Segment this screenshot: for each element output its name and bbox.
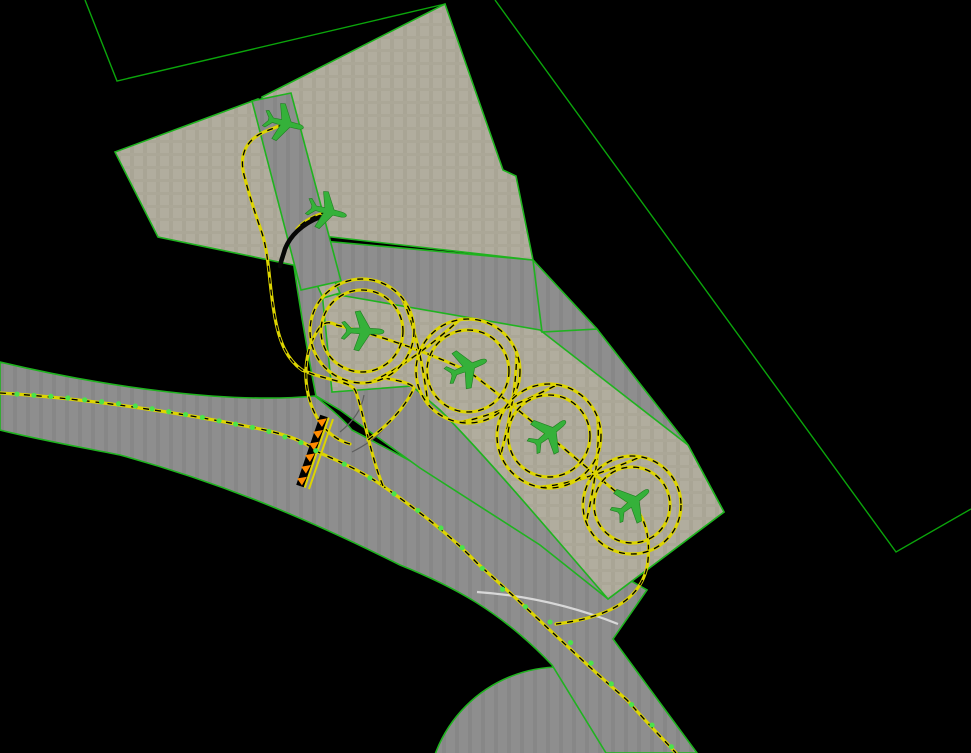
path-node-dot-icon[interactable] [282, 434, 287, 439]
path-node-dot-icon[interactable] [609, 681, 614, 686]
path-node-dot-icon[interactable] [669, 744, 674, 749]
path-node-dot-icon[interactable] [149, 406, 154, 411]
path-node-dot-icon[interactable] [415, 508, 420, 513]
path-node-dot-icon[interactable] [588, 660, 593, 665]
path-node-dot-icon[interactable] [298, 440, 303, 445]
path-node-dot-icon[interactable] [65, 395, 70, 400]
path-node-dot-icon[interactable] [367, 475, 372, 480]
path-node-dot-icon[interactable] [233, 422, 238, 427]
path-node-dot-icon[interactable] [250, 425, 255, 430]
path-node-dot-icon[interactable] [313, 448, 318, 453]
path-node-dot-icon[interactable] [133, 403, 138, 408]
path-node-dot-icon[interactable] [568, 640, 573, 645]
path-node-dot-icon[interactable] [649, 722, 654, 727]
airport-canvas[interactable] [0, 0, 971, 753]
path-node-dot-icon[interactable] [342, 462, 347, 467]
path-node-dot-icon[interactable] [438, 525, 443, 530]
path-node-dot-icon[interactable] [216, 418, 221, 423]
path-node-dot-icon[interactable] [99, 399, 104, 404]
path-node-dot-icon[interactable] [166, 409, 171, 414]
path-node-dot-icon[interactable] [116, 401, 121, 406]
path-node-dot-icon[interactable] [460, 545, 465, 550]
path-node-dot-icon[interactable] [629, 702, 634, 707]
path-node-dot-icon[interactable] [31, 393, 36, 398]
path-node-dot-icon[interactable] [48, 394, 53, 399]
path-node-dot-icon[interactable] [266, 429, 271, 434]
airport-layout-stage [0, 0, 971, 753]
path-node-dot-icon[interactable] [200, 415, 205, 420]
path-node-dot-icon[interactable] [391, 491, 396, 496]
path-node-dot-icon[interactable] [14, 392, 19, 397]
path-node-dot-icon[interactable] [183, 412, 188, 417]
path-node-dot-icon[interactable] [480, 566, 485, 571]
path-node-dot-icon[interactable] [82, 397, 87, 402]
path-node-dot-icon[interactable] [523, 604, 528, 609]
path-node-dot-icon[interactable] [500, 587, 505, 592]
path-node-dot-icon[interactable] [547, 619, 552, 624]
